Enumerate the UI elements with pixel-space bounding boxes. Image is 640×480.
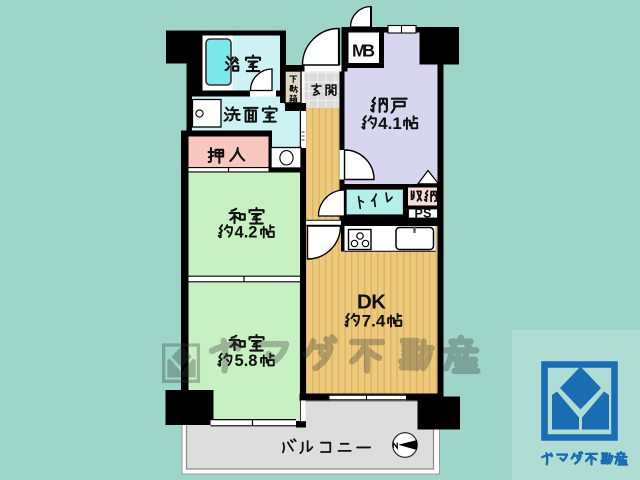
svg-text:PS: PS (415, 207, 432, 221)
svg-text:5.8: 5.8 (235, 352, 258, 370)
svg-text:MB: MB (352, 41, 375, 61)
svg-text:4.2: 4.2 (235, 224, 258, 242)
svg-text:7.4: 7.4 (362, 311, 386, 330)
svg-text:DK: DK (357, 291, 386, 314)
svg-text:4.1: 4.1 (378, 114, 402, 133)
